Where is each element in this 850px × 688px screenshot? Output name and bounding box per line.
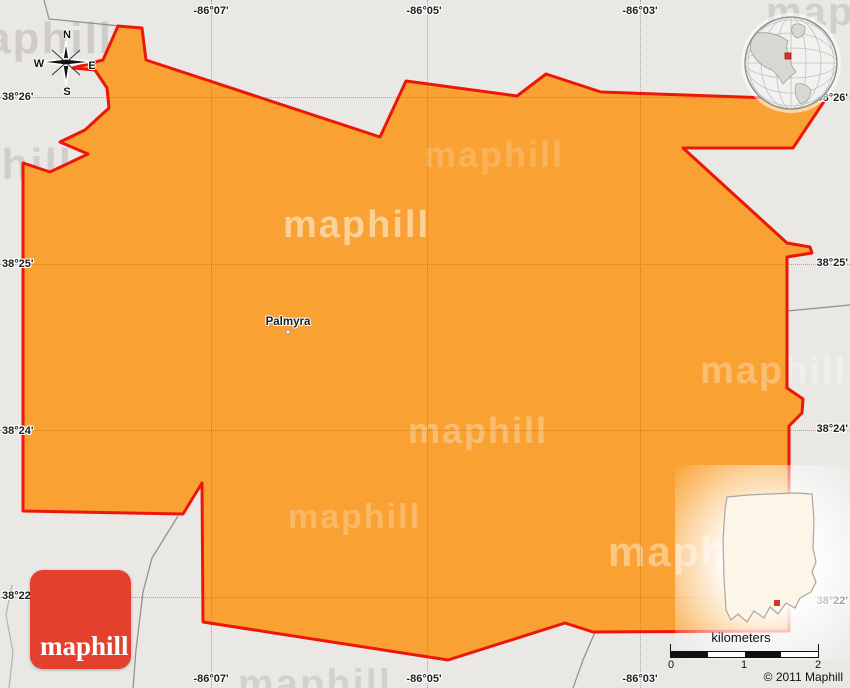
lon-label: -86°03' xyxy=(622,5,657,17)
lon-label: -86°07' xyxy=(193,673,228,685)
watermark: maphill xyxy=(283,204,430,247)
lon-label: -86°05' xyxy=(406,673,441,685)
copyright-text: © 2011 Maphill xyxy=(764,670,843,684)
maphill-logo[interactable]: maphill xyxy=(30,570,131,669)
globe-marker xyxy=(785,53,791,59)
lat-label: 38°22' xyxy=(2,590,34,602)
lat-label: 38°24' xyxy=(817,423,849,435)
lat-label: 38°24' xyxy=(2,425,34,437)
lon-label: -86°05' xyxy=(406,5,441,17)
watermark: maphill xyxy=(288,498,421,537)
gridline-lat xyxy=(0,430,850,431)
gridline-lon xyxy=(427,0,428,688)
gridline-lon xyxy=(640,0,641,688)
lat-label: 38°26' xyxy=(2,91,34,103)
watermark: maphill xyxy=(0,140,73,190)
compass-n-label: N xyxy=(63,29,71,41)
scale-number: 1 xyxy=(741,659,747,671)
scale-bar-title: kilometers xyxy=(663,630,819,645)
lat-label: 38°26' xyxy=(817,92,849,104)
compass-w-label: W xyxy=(34,58,44,70)
place-marker-dot xyxy=(286,330,291,335)
lat-label: 38°25' xyxy=(817,257,849,269)
compass-s-label: S xyxy=(63,86,70,98)
compass-e-label: E xyxy=(88,60,95,72)
scale-number: 0 xyxy=(668,659,674,671)
lon-label: -86°03' xyxy=(622,673,657,685)
watermark: maphill xyxy=(700,350,847,393)
scale-bar-segments xyxy=(670,651,819,658)
maphill-logo-text: maphill xyxy=(40,631,129,662)
watermark: maphill xyxy=(424,134,564,176)
lat-label: 38°25' xyxy=(2,258,34,270)
lon-label: -86°07' xyxy=(193,5,228,17)
watermark: maphill xyxy=(238,662,392,688)
watermark: maphill xyxy=(408,410,548,452)
map-canvas: maphill maphill maphill maphill maphill … xyxy=(0,0,850,688)
gridline-lon xyxy=(211,0,212,688)
gridline-lat xyxy=(0,97,850,98)
place-label-palmyra: Palmyra xyxy=(266,316,311,328)
watermark: maphill xyxy=(0,14,113,64)
watermark: maphill xyxy=(766,0,850,35)
gridline-lat xyxy=(0,264,850,265)
scale-bar: kilometers 0 1 2 xyxy=(663,630,828,674)
